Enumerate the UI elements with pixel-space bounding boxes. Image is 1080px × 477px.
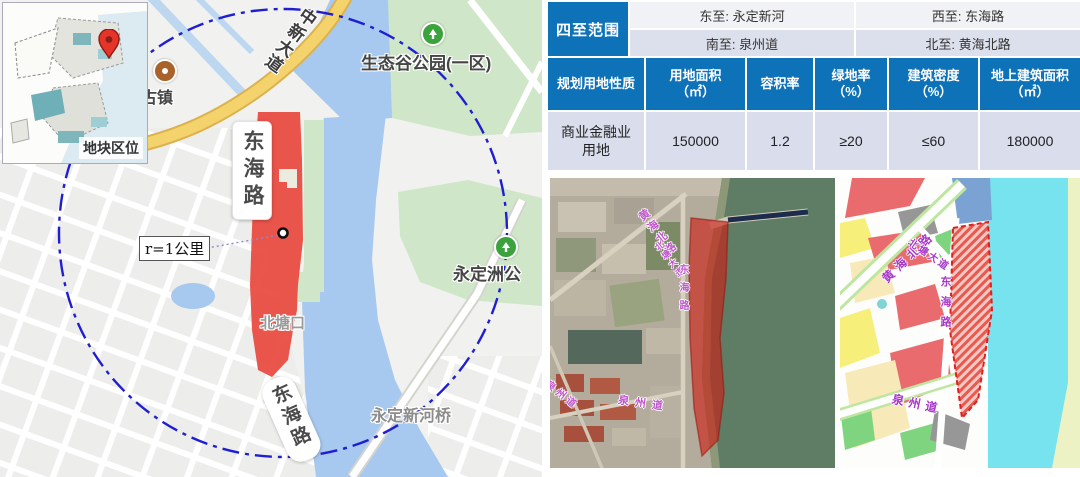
cell-land-area: 150000	[646, 112, 745, 170]
boundary-south: 南至: 泉州道	[630, 30, 854, 56]
plan-river	[988, 178, 1070, 468]
col-header-green-ratio: 绿地率 （%）	[815, 58, 887, 110]
satellite-image: 黄海北路 北塘大道 东海路 泉州道 泉州道	[550, 178, 835, 468]
col-header-land-area: 用地面积 （㎡）	[646, 58, 745, 110]
boundary-east: 东至: 永定新河	[630, 2, 854, 28]
road-label-box-donghai: 东海路	[232, 121, 272, 220]
col-header-above-ground-area: 地上建筑面积 （㎡）	[980, 58, 1080, 110]
circle-center-dot	[279, 229, 288, 238]
planning-data-table: 规划用地性质 用地面积 （㎡） 容积率 绿地率 （%） 建筑密度 （%） 地上建…	[548, 58, 1080, 170]
col-header-plot-ratio: 容积率	[747, 58, 813, 110]
poi-label-yongding-bridge: 永定新河桥	[371, 402, 451, 426]
park-tree-icon	[494, 235, 518, 259]
ancient-town-icon	[153, 59, 177, 83]
cell-green-ratio: ≥20	[815, 112, 887, 170]
poi-label-eco-park: 生态谷公园(一区)	[361, 49, 491, 74]
poi-label-beitangkou: 北塘口	[260, 312, 305, 333]
poi-label-yongdingzhou-park: 永定洲公	[453, 260, 521, 285]
boundary-table-title: 四至范围	[548, 2, 628, 56]
cell-building-density: ≤60	[889, 112, 978, 170]
boundary-west: 西至: 东海路	[856, 2, 1080, 28]
location-pin-icon	[96, 29, 122, 59]
col-header-building-density: 建筑密度 （%）	[889, 58, 978, 110]
cell-plot-ratio: 1.2	[747, 112, 813, 170]
plan-road-label-donghai: 东海路	[937, 276, 953, 336]
radius-label: r=1公里	[139, 236, 210, 261]
boundary-north: 北至: 黄海北路	[856, 30, 1080, 56]
slide: 中新大道 生态谷公园(一区) 古镇 东海路 r=1公里 北塘口 永定洲公 永定新…	[0, 0, 1080, 477]
col-header-land-use: 规划用地性质	[548, 58, 644, 110]
inset-map: 地块区位	[2, 2, 148, 164]
inset-map-title: 地块区位	[79, 137, 143, 159]
cell-land-use: 商业金融业 用地	[548, 112, 644, 170]
location-map: 中新大道 生态谷公园(一区) 古镇 东海路 r=1公里 北塘口 永定洲公 永定新…	[0, 0, 542, 477]
sat-road-label-donghai: 东海路	[675, 264, 690, 318]
road-label-donghai-top: 东海路	[237, 130, 267, 211]
park-tree-icon	[421, 22, 445, 46]
cell-above-ground-area: 180000	[980, 112, 1080, 170]
planning-map: 黄海北路 北塘大道 东海路 泉州道	[840, 178, 1080, 468]
boundary-table: 四至范围 东至: 永定新河 西至: 东海路 南至: 泉州道 北至: 黄海北路	[548, 2, 1080, 56]
